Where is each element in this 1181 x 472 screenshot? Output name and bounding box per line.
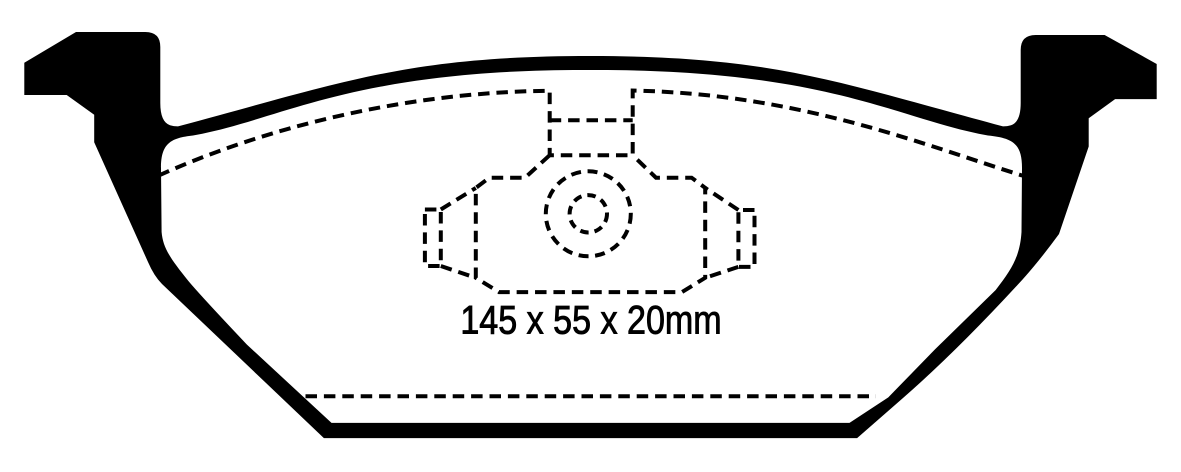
- svg-text:145 x 55 x 20mm: 145 x 55 x 20mm: [460, 297, 721, 342]
